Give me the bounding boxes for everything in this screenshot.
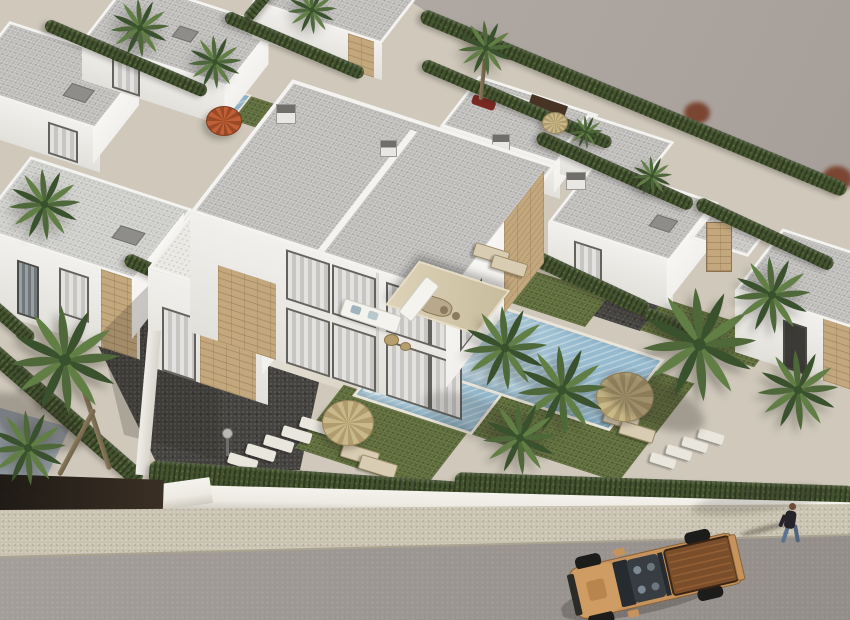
sofa-cushion: [350, 305, 362, 316]
unit-divider: [376, 272, 379, 393]
palm-tree: [283, 0, 341, 39]
palm-tree: [183, 30, 247, 94]
roof-hatch: [648, 214, 678, 233]
street-lamp: [222, 428, 232, 456]
palm-tree: [476, 394, 564, 482]
rattan-table: [384, 334, 399, 346]
facade-window: [286, 249, 330, 313]
lamp-head: [222, 428, 233, 439]
orange-parasol: [206, 106, 242, 136]
truck-mirror: [613, 548, 625, 557]
straw-parasol: [542, 112, 568, 134]
palm-tree: [750, 342, 846, 438]
pedestrian: [766, 492, 816, 552]
villa-window: [48, 122, 78, 164]
palm-tree: [453, 15, 519, 81]
pedestrian-head: [789, 503, 796, 510]
dining-chair: [440, 306, 448, 314]
roof-hatch: [111, 225, 145, 246]
rattan-table: [400, 342, 411, 351]
chimney: [380, 140, 397, 157]
palm-tree: [2, 162, 87, 247]
roof-hatch: [62, 83, 95, 103]
aerial-render-scene: Aerial 3D architectural rendering of a m…: [0, 0, 850, 620]
palm-tree: [628, 152, 676, 200]
straw-parasol: [322, 400, 374, 446]
palm-tree: [0, 403, 73, 493]
palm-tree: [726, 249, 818, 341]
roof-ridge: [318, 130, 417, 252]
chimney: [566, 172, 586, 190]
palm-tree: [566, 112, 606, 152]
chimney: [276, 104, 296, 124]
sofa-cushion: [367, 310, 379, 321]
palm-tree: [105, 0, 175, 63]
